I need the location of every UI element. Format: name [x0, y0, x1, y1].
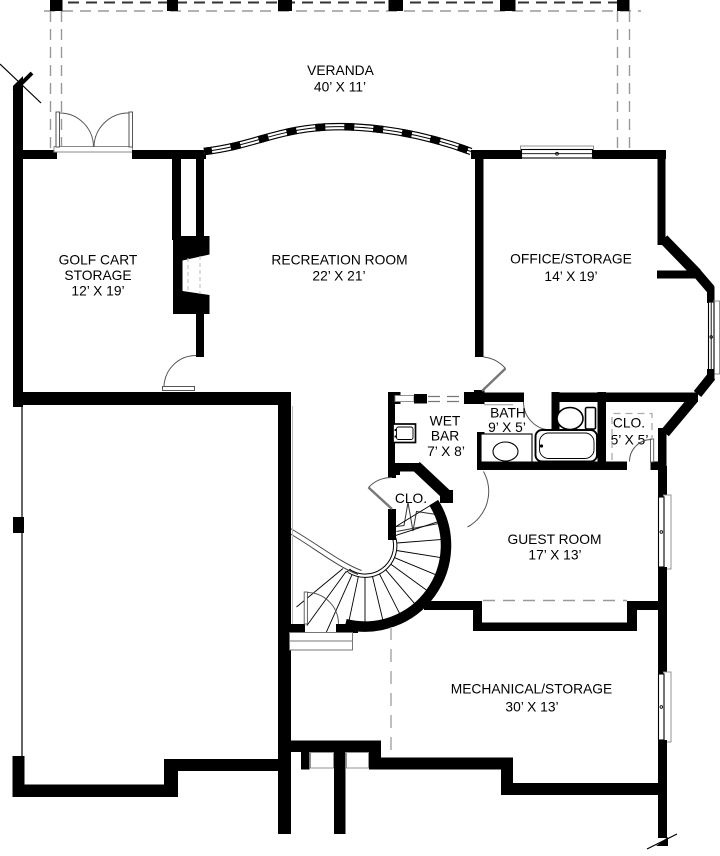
svg-text:GUEST ROOM: GUEST ROOM [507, 532, 601, 547]
svg-text:12’ X 19’: 12’ X 19’ [71, 284, 124, 299]
svg-text:WET: WET [430, 413, 461, 428]
svg-text:CLO.: CLO. [613, 416, 645, 431]
svg-text:5’ X 5’: 5’ X 5’ [611, 432, 649, 447]
svg-text:14’ X 19’: 14’ X 19’ [544, 269, 597, 284]
svg-text:RECREATION ROOM: RECREATION ROOM [271, 253, 407, 268]
svg-text:MECHANICAL/STORAGE: MECHANICAL/STORAGE [451, 682, 613, 697]
svg-text:GOLF CART: GOLF CART [59, 253, 138, 268]
svg-text:40’ X 11’: 40’ X 11’ [314, 80, 366, 95]
svg-text:STORAGE: STORAGE [64, 268, 131, 283]
svg-text:7’ X 8’: 7’ X 8’ [427, 444, 465, 459]
svg-text:CLO.: CLO. [395, 491, 427, 506]
svg-text:BATH: BATH [490, 405, 526, 420]
svg-text:BAR: BAR [431, 429, 459, 444]
svg-text:OFFICE/STORAGE: OFFICE/STORAGE [510, 252, 632, 267]
svg-text:9’ X 5’: 9’ X 5’ [488, 420, 526, 435]
svg-text:30’ X 13’: 30’ X 13’ [505, 700, 558, 715]
svg-text:17’ X 13’: 17’ X 13’ [528, 548, 581, 563]
svg-text:VERANDA: VERANDA [307, 63, 374, 78]
svg-text:22’ X 21’: 22’ X 21’ [312, 269, 365, 284]
